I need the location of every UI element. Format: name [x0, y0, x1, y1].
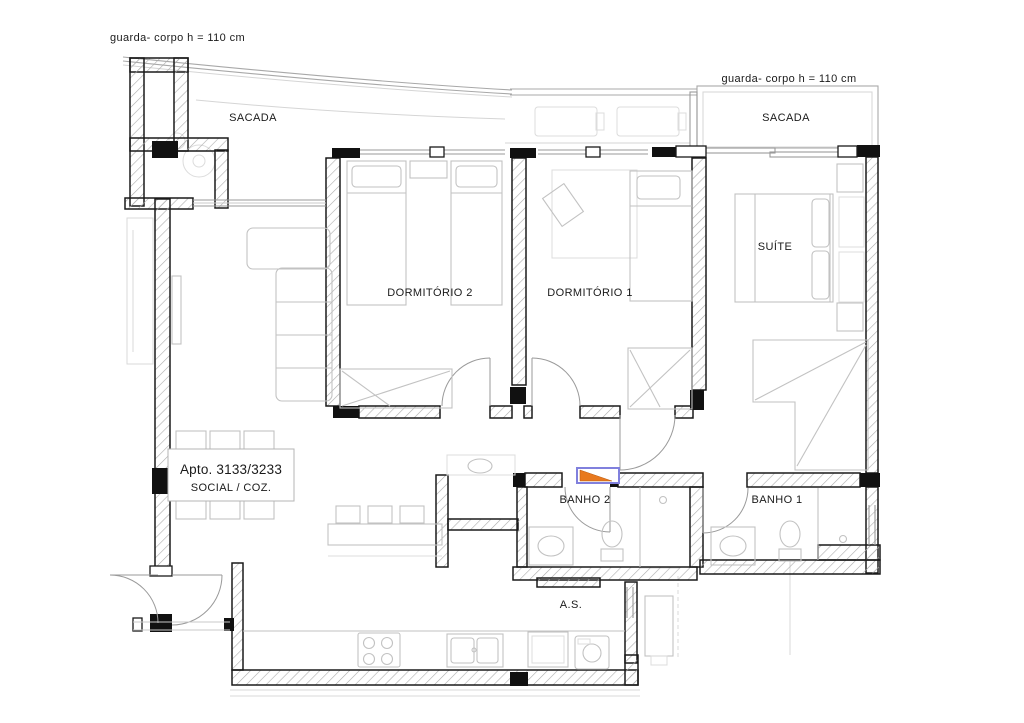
suite-label: SUÍTE [758, 240, 792, 253]
bath2-label: BANHO 2 [559, 494, 610, 506]
kitchen-furniture [243, 596, 673, 669]
bathroom-fixtures [447, 455, 847, 567]
floor-plan-svg: guarda- corpo h = 110 cm guarda- corpo h… [0, 0, 1024, 723]
bedroom2-furniture [340, 161, 502, 408]
apartment-number-label: Apto. 3133/3233 [180, 462, 282, 477]
bedroom2-label: DORMITÓRIO 2 [387, 286, 472, 299]
balcony-left-label: SACADA [229, 112, 277, 124]
sun-loungers [535, 107, 686, 136]
windows [193, 147, 875, 618]
living-kitchen-label: SOCIAL / COZ. [191, 482, 272, 494]
bath1-label: BANHO 1 [751, 494, 802, 506]
structural-pillar-topleft [125, 58, 228, 209]
service-area-label: A.S. [560, 599, 582, 611]
floor-plan-page: guarda- corpo h = 110 cm guarda- corpo h… [0, 0, 1024, 723]
bedroom1-label: DORMITÓRIO 1 [547, 286, 632, 299]
balcony-center [505, 89, 697, 143]
suite-furniture [735, 164, 868, 470]
guardrail-left-label: guarda- corpo h = 110 cm [110, 32, 245, 44]
living-room-furniture [168, 228, 442, 556]
entry-marker-icon [577, 468, 619, 483]
balcony-right-label: SACADA [762, 112, 810, 124]
walls [155, 157, 880, 685]
guardrail-right-label: guarda- corpo h = 110 cm [721, 73, 856, 85]
